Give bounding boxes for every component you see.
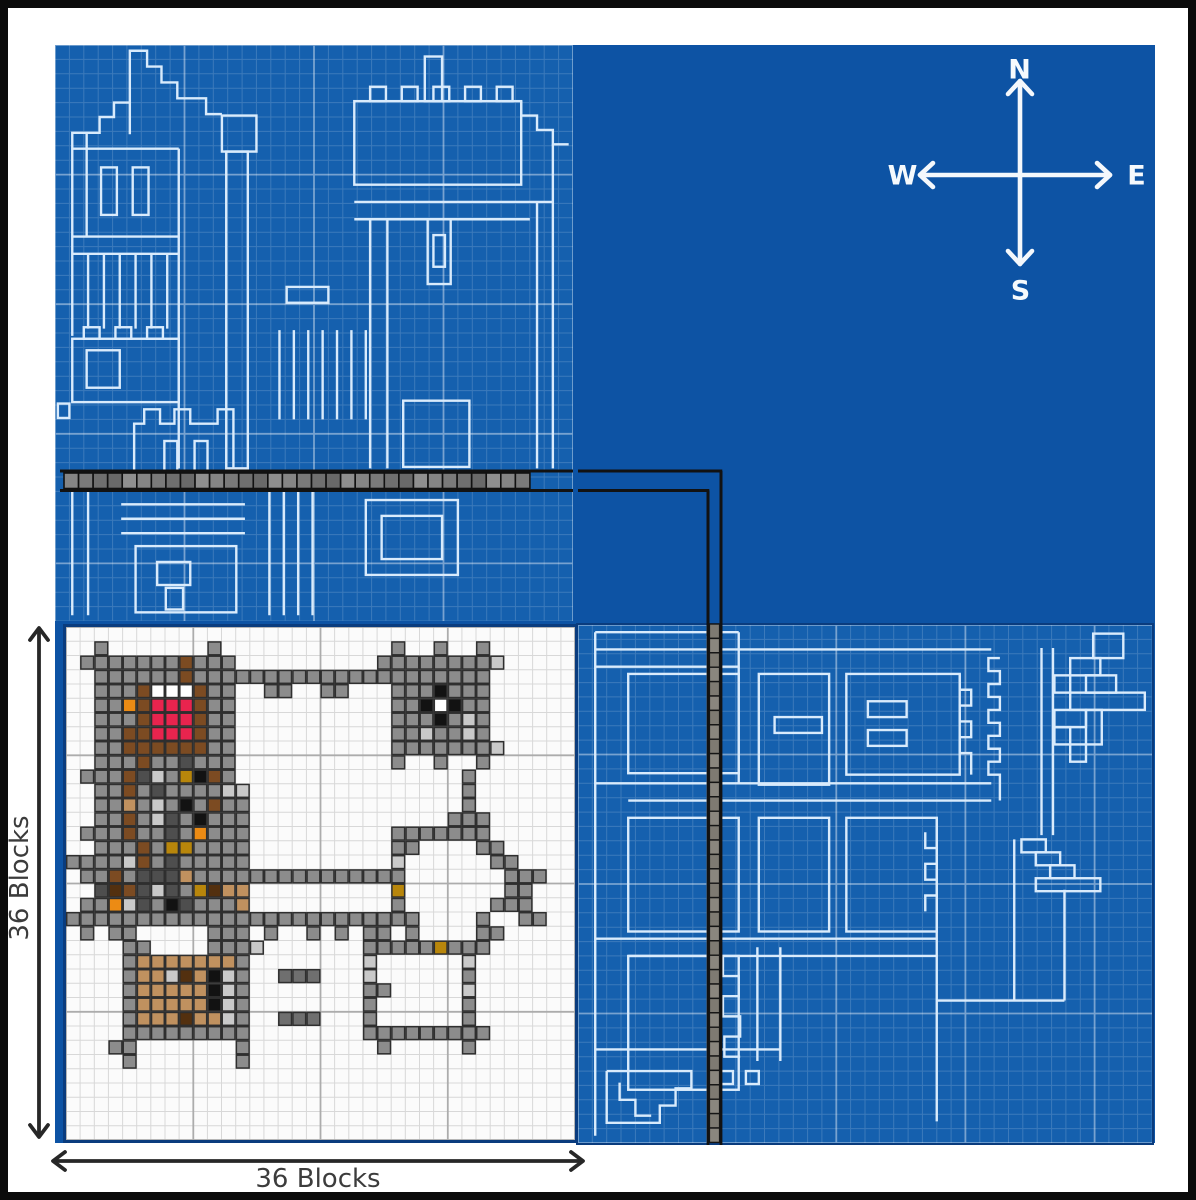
floor-plan-panel (66, 627, 575, 1140)
walkway-vertical (700, 620, 728, 1145)
compass-rose (890, 50, 1150, 300)
dimension-label-left: 36 Blocks (5, 815, 35, 940)
walkway-horizontal (55, 464, 735, 636)
dimension-label-bottom: 36 Blocks (255, 1164, 380, 1194)
compass-label-north: N (1008, 55, 1032, 86)
compass-label-east: E (1127, 161, 1146, 192)
castle-blueprint-page: N E S W 36 Blocks 36 Blocks (0, 0, 1196, 1200)
compass-label-west: W (888, 161, 919, 192)
blueprint-bottom-right-panel (578, 625, 1152, 1143)
compass-label-south: S (1011, 276, 1031, 307)
compass-arrows-icon (890, 50, 1150, 300)
